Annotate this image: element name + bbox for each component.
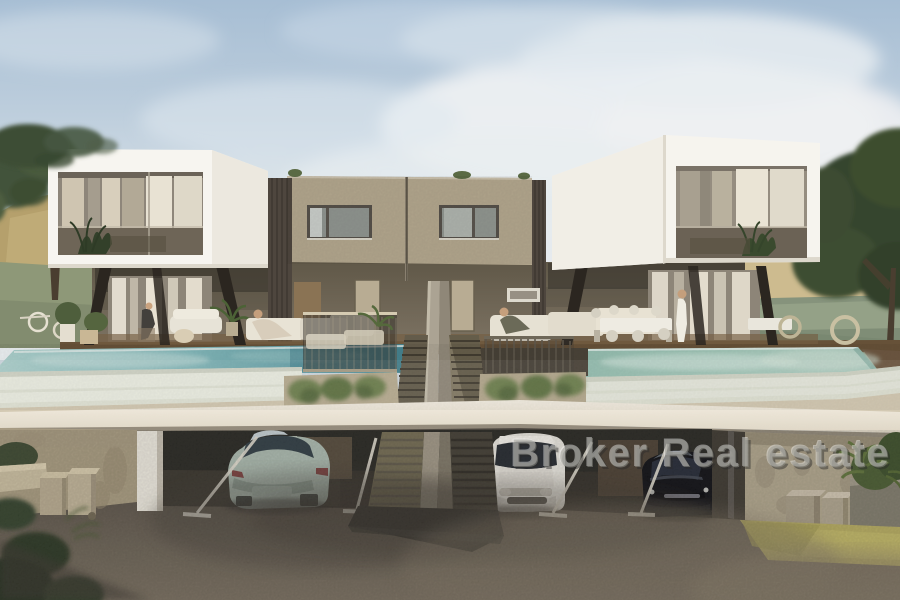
- svg-text:Broker Real estate: Broker Real estate: [511, 432, 891, 476]
